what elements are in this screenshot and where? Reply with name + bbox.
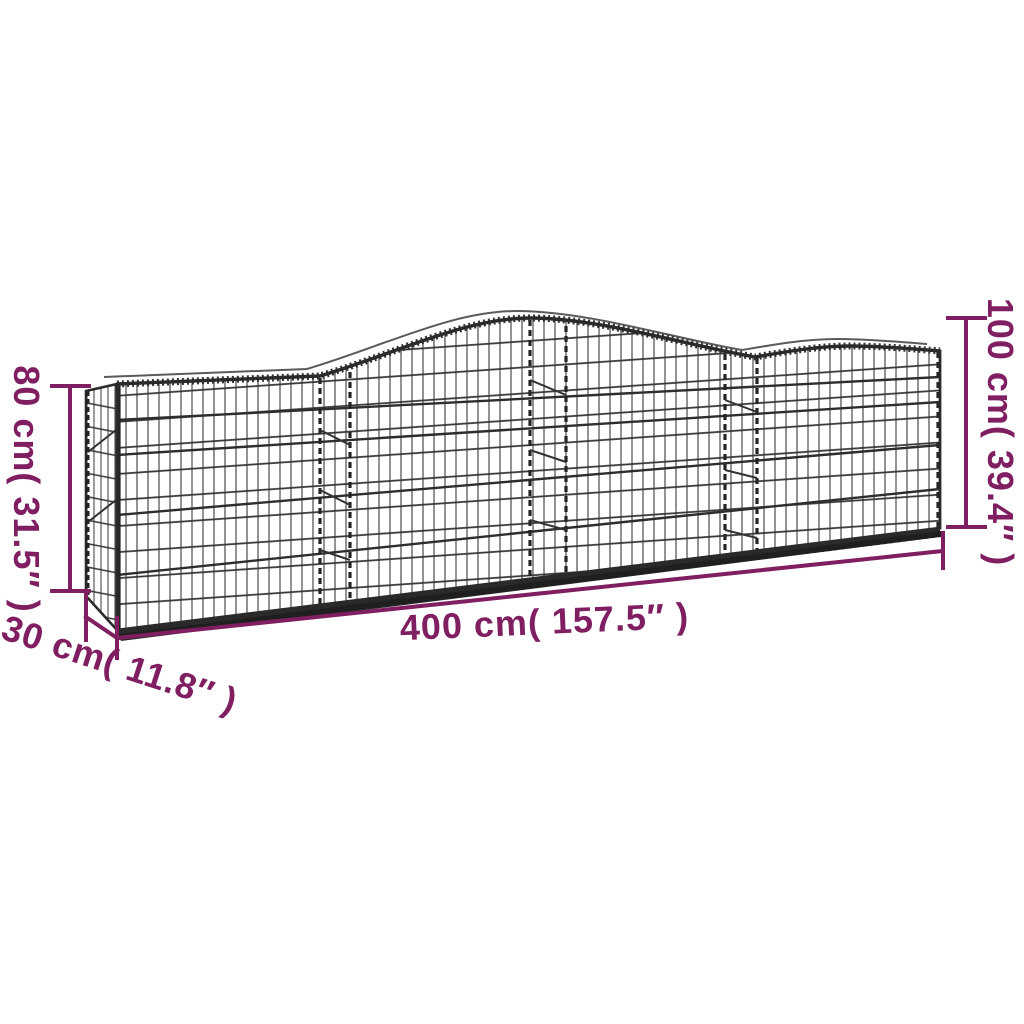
product-image: 80 cm( 31.5″ ) 100 cm( 39.4″ ) 400 cm( 1… bbox=[0, 0, 1024, 1024]
gabion-basket-illustration bbox=[86, 311, 941, 641]
dimension-line-height-right bbox=[948, 318, 985, 527]
product-dimension-diagram: 80 cm( 31.5″ ) 100 cm( 39.4″ ) 400 cm( 1… bbox=[0, 0, 1024, 1024]
height-left-label: 80 cm( 31.5″ ) bbox=[6, 365, 47, 612]
dimension-line-height-left bbox=[52, 386, 89, 591]
gabion-front-mesh-panel bbox=[117, 318, 941, 641]
gabion-left-end-panel bbox=[86, 384, 117, 630]
height-right-label: 100 cm( 39.4″ ) bbox=[980, 298, 1021, 566]
